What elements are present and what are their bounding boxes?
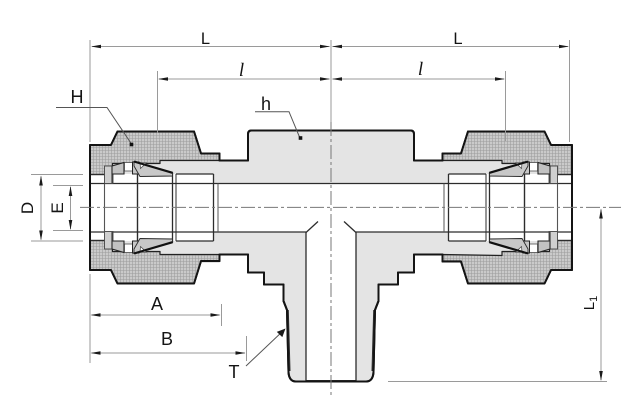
svg-text:L1: L1: [581, 296, 600, 310]
svg-text:l: l: [418, 59, 423, 80]
svg-text:E: E: [48, 202, 67, 213]
svg-text:D: D: [18, 202, 37, 214]
svg-text:L: L: [453, 30, 462, 48]
svg-text:A: A: [151, 294, 163, 314]
svg-text:L: L: [201, 30, 210, 48]
svg-text:l: l: [239, 60, 244, 81]
svg-text:T: T: [229, 362, 240, 382]
svg-text:B: B: [161, 329, 173, 349]
svg-text:H: H: [71, 87, 84, 107]
svg-text:h: h: [261, 94, 271, 114]
